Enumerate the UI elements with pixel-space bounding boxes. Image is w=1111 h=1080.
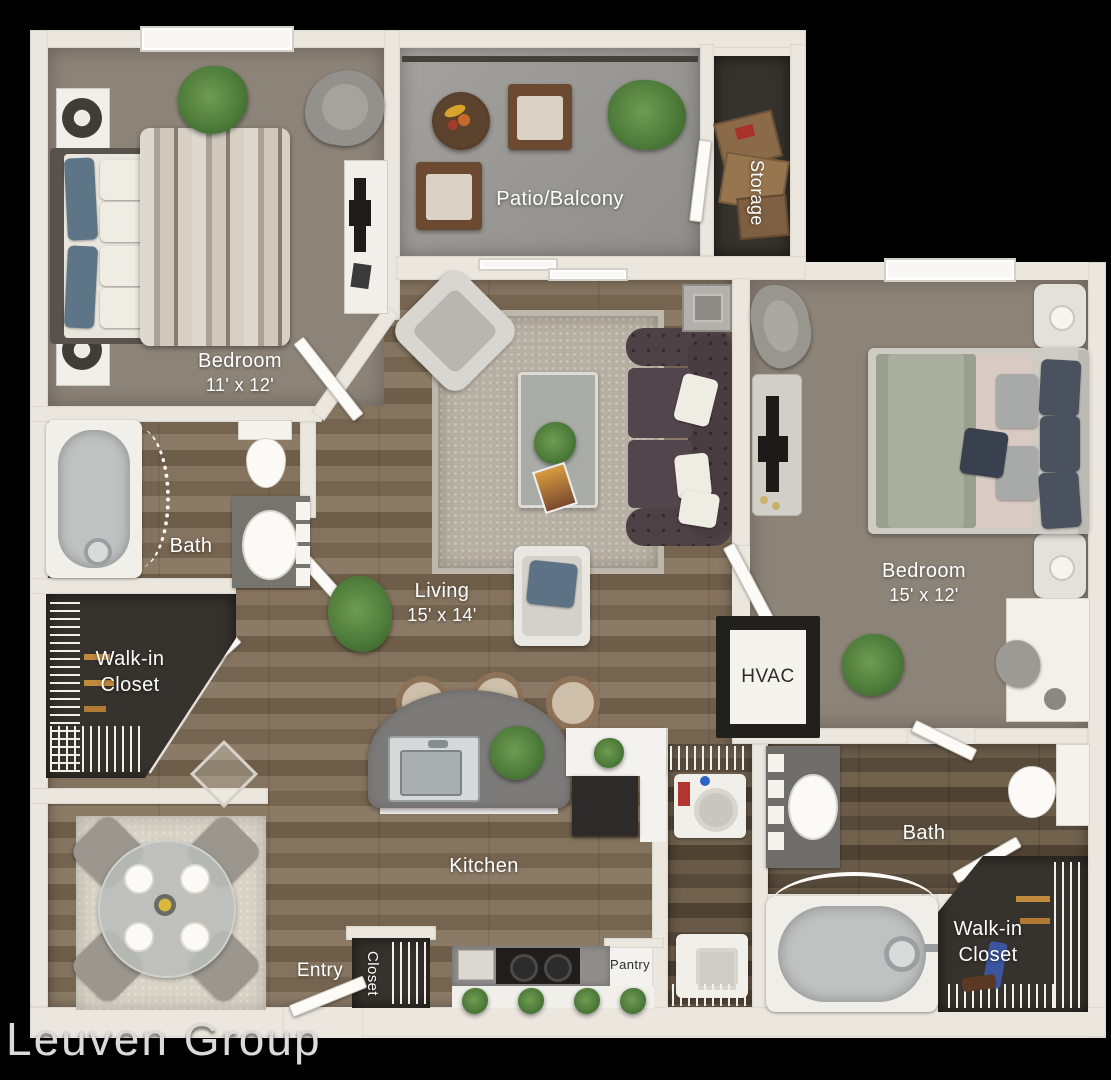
faucet-icon: [428, 740, 448, 748]
pillow: [996, 374, 1038, 428]
room-name: Walk-in: [72, 646, 188, 672]
decor: [1044, 688, 1066, 710]
towel: [768, 754, 784, 772]
accent-chair: [514, 546, 590, 646]
tray: [693, 294, 723, 322]
side-table: [682, 284, 732, 332]
pillow: [959, 427, 1009, 479]
room-name: Kitchen: [436, 853, 532, 879]
room-label-entry: Entry: [288, 958, 352, 983]
wire-shelf: [392, 942, 426, 1004]
detergent-cap: [700, 776, 710, 786]
wall: [790, 44, 806, 262]
hvac-panel: HVAC: [730, 630, 806, 724]
pillow: [526, 560, 578, 609]
room-name: Living: [382, 578, 502, 604]
bathtub: [766, 896, 938, 1012]
duvet: [876, 354, 976, 528]
towel: [296, 502, 310, 520]
seat-cushion: [319, 80, 372, 133]
room-label-pantry: Pantry: [604, 956, 656, 973]
towel: [296, 546, 310, 564]
seat-cushion: [411, 287, 499, 375]
hvac-label: HVAC: [741, 666, 794, 688]
room-label-walkin2: Walk-in Closet: [930, 916, 1046, 969]
wall: [732, 278, 750, 546]
room-name: Closet: [930, 942, 1046, 968]
decor: [1049, 305, 1075, 331]
towel: [296, 568, 310, 586]
room-label-living: Living 15' x 14': [382, 578, 502, 628]
fruit: [448, 120, 458, 130]
room-label-bedroom1: Bedroom 11' x 12': [150, 348, 330, 398]
decor: [772, 502, 780, 510]
small-appliance: [458, 950, 494, 980]
room-label-bath1: Bath: [156, 533, 226, 559]
room-dims: 15' x 12': [834, 584, 1014, 608]
room-name: Storage: [744, 128, 768, 258]
clothes: [1016, 896, 1050, 902]
tv-console: [344, 160, 388, 314]
room-name: Bath: [892, 820, 956, 846]
towel: [296, 524, 310, 542]
room-name: Pantry: [604, 956, 656, 973]
room-name: Bedroom: [834, 558, 1014, 584]
decor: [350, 263, 371, 289]
wall: [604, 938, 664, 948]
room-name: Bath: [156, 533, 226, 559]
stove: [496, 948, 580, 984]
room-label-bath2: Bath: [892, 820, 956, 846]
sink: [388, 736, 480, 802]
pillow: [64, 157, 98, 240]
decor: [760, 496, 768, 504]
room-label-entry-closet: Closet: [354, 938, 382, 1008]
drain-icon: [884, 936, 920, 972]
fruit: [458, 114, 470, 126]
sofa: [626, 328, 732, 546]
seat-cushion: [760, 297, 803, 354]
pillow: [64, 245, 98, 328]
patio-railing: [402, 56, 698, 62]
window: [140, 26, 294, 52]
room-name: Bedroom: [150, 348, 330, 374]
wire-shelf: [672, 984, 750, 1006]
wall: [30, 578, 236, 594]
pillow: [678, 489, 721, 529]
plate: [180, 922, 210, 952]
patio-chair: [508, 84, 572, 150]
plate: [180, 864, 210, 894]
sink-basin: [400, 750, 462, 796]
room-name: Patio/Balcony: [460, 186, 660, 212]
room-name: Walk-in: [930, 916, 1046, 942]
washer-door: [694, 788, 738, 832]
wire-shelf: [50, 726, 144, 772]
room-name: Closet: [72, 672, 188, 698]
detergent: [678, 782, 690, 806]
centerpiece: [154, 894, 176, 916]
towel: [768, 806, 784, 824]
burner-icon: [510, 954, 538, 982]
seat-cushion: [517, 96, 563, 140]
pillow: [1038, 471, 1082, 530]
room-label-kitchen: Kitchen: [436, 853, 532, 879]
watermark: Leuven Group: [6, 1012, 322, 1066]
sink: [788, 774, 838, 840]
plate: [124, 864, 154, 894]
wire-shelf: [670, 746, 750, 770]
burner-icon: [544, 954, 572, 982]
room-dims: 11' x 12': [150, 374, 330, 398]
faucet-icon: [84, 538, 112, 566]
nightstand: [1034, 534, 1086, 598]
plant: [608, 80, 686, 150]
room-dims: 15' x 14': [382, 604, 502, 628]
cabinet: [1056, 744, 1090, 826]
room-label-walkin1: Walk-in Closet: [72, 646, 188, 699]
cabinet: [572, 776, 638, 836]
room-label-bedroom2: Bedroom 15' x 12': [834, 558, 1014, 608]
tv-icon: [349, 200, 371, 226]
counter: [640, 776, 666, 842]
wire-shelf: [1054, 862, 1084, 1008]
clothes: [84, 706, 106, 712]
pillow: [1039, 359, 1082, 417]
tv-icon: [758, 436, 788, 462]
pillow: [1040, 416, 1080, 472]
toilet: [238, 420, 292, 440]
window: [884, 258, 1016, 282]
plate: [124, 922, 154, 952]
room-label-storage: Storage: [736, 128, 768, 258]
room-label-patio: Patio/Balcony: [460, 186, 660, 212]
wall: [1088, 262, 1106, 1038]
sliding-door: [548, 268, 628, 281]
sliding-door: [478, 258, 558, 271]
decor: [1049, 555, 1075, 581]
wall: [974, 728, 1088, 744]
nightstand: [1034, 284, 1086, 348]
washer: [674, 774, 746, 838]
room-name: Entry: [288, 958, 352, 983]
duvet: [140, 128, 290, 346]
room-name: Closet: [362, 938, 382, 1008]
hvac-unit: HVAC: [716, 616, 820, 738]
towel: [768, 832, 784, 850]
towel: [768, 780, 784, 798]
floorplan: HVAC: [0, 0, 1111, 1080]
lamp-icon: [62, 98, 102, 138]
sink: [242, 510, 298, 580]
